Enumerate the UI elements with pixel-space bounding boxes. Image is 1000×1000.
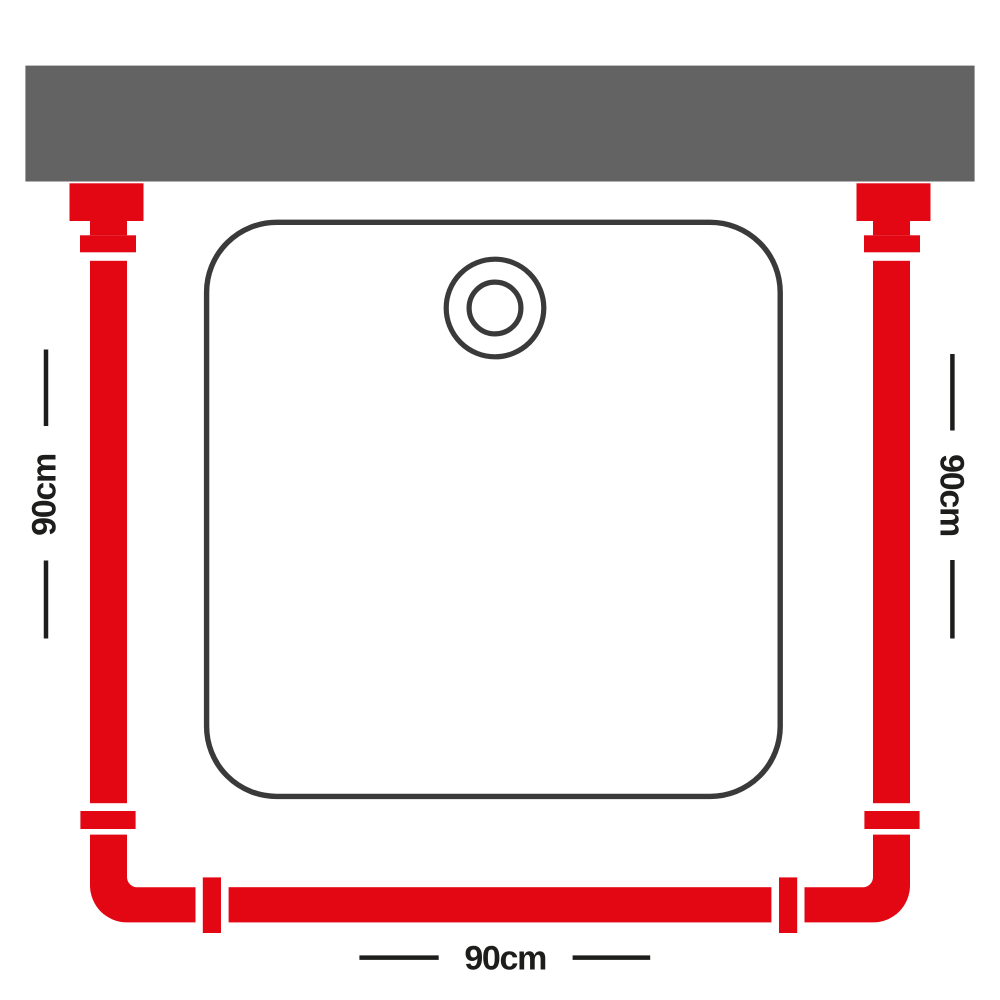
svg-text:90cm: 90cm [26,454,64,536]
svg-text:90cm: 90cm [464,940,546,978]
svg-text:90cm: 90cm [933,454,971,536]
